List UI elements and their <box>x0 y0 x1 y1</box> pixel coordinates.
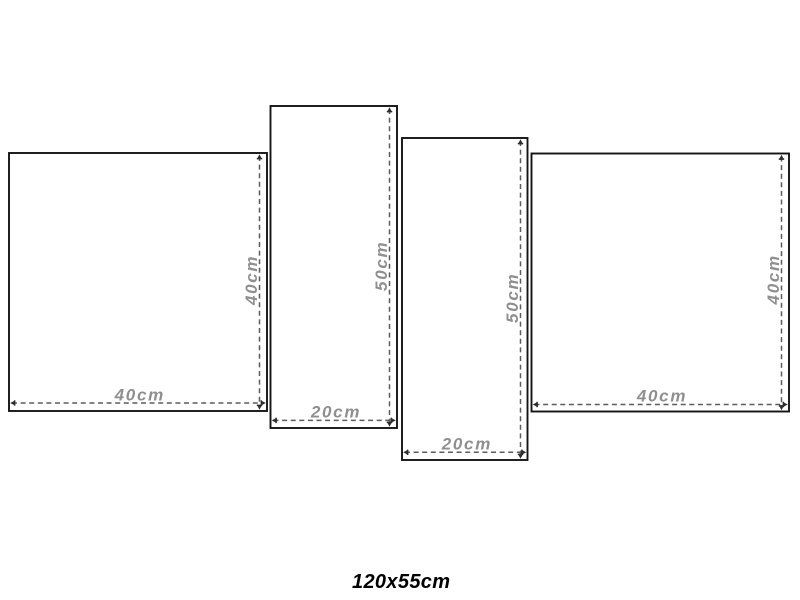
svg-text:20cm: 20cm <box>310 402 361 421</box>
svg-text:20cm: 20cm <box>441 435 492 454</box>
svg-text:50cm: 50cm <box>503 273 522 323</box>
svg-text:50cm: 50cm <box>372 241 391 291</box>
svg-text:40cm: 40cm <box>242 255 261 306</box>
svg-text:40cm: 40cm <box>114 385 165 404</box>
svg-text:40cm: 40cm <box>764 254 783 305</box>
svg-text:120x55cm: 120x55cm <box>352 571 450 593</box>
svg-text:40cm: 40cm <box>636 386 687 405</box>
